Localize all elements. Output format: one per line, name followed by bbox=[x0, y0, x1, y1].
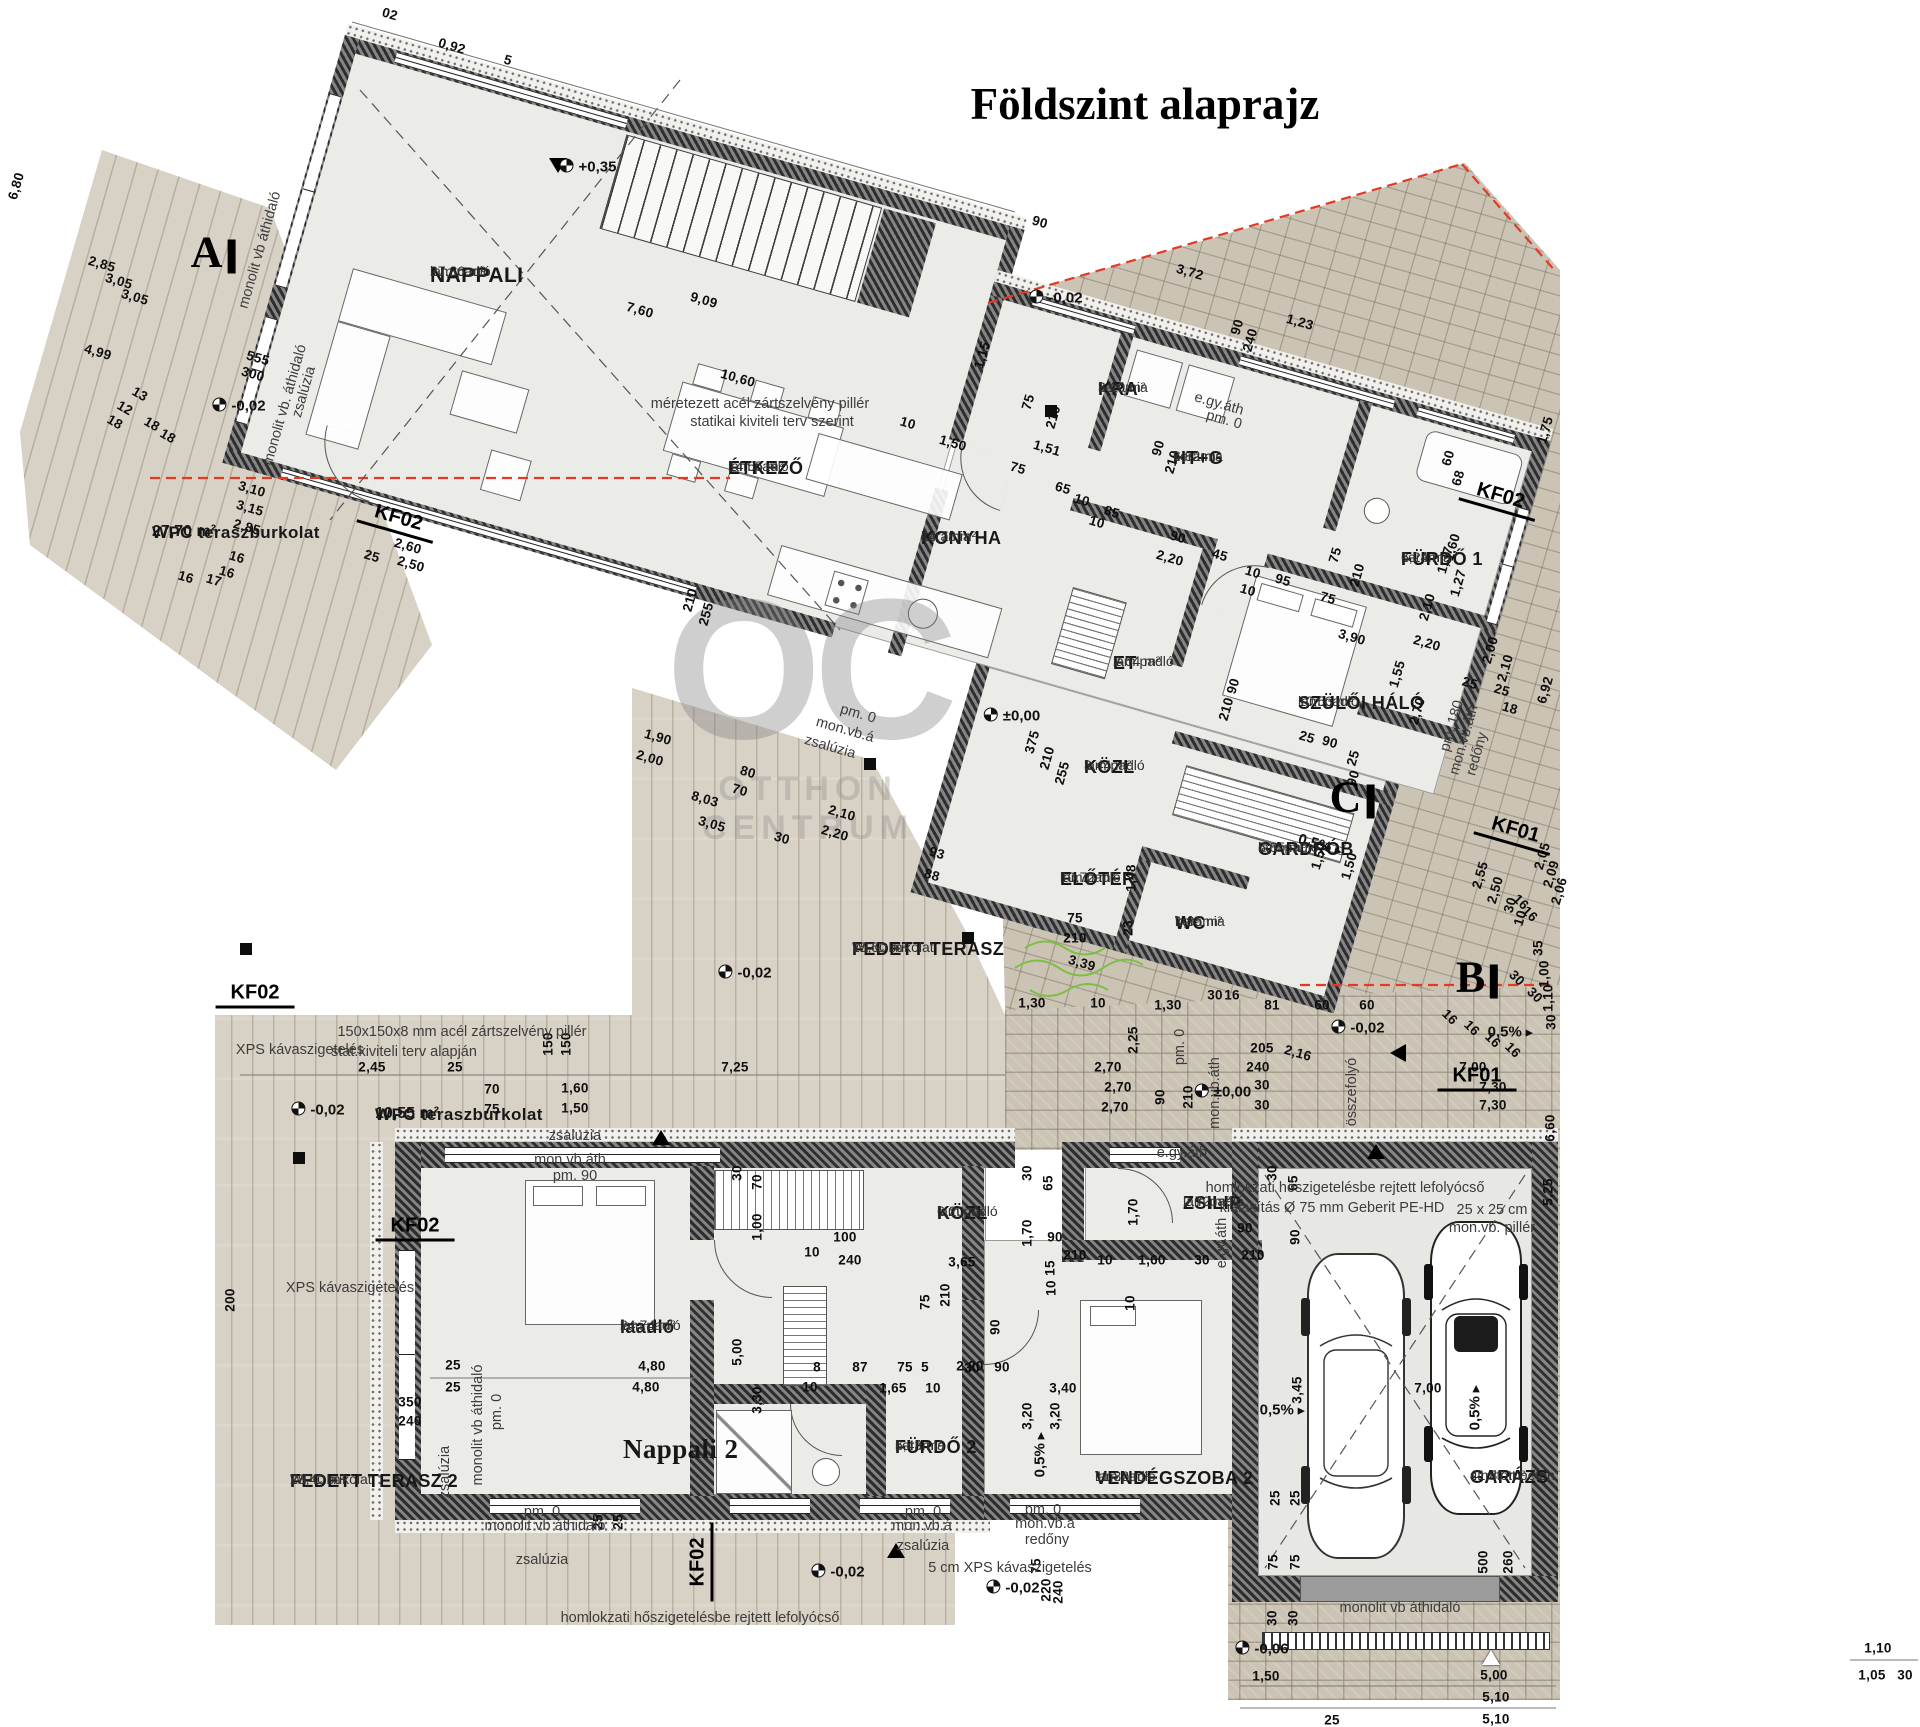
room-area: 1,85 m² bbox=[1175, 912, 1222, 930]
label-dim: 16 bbox=[1461, 1017, 1483, 1039]
label-dim: 205 bbox=[1250, 1041, 1273, 1056]
label-dim: 1,51 bbox=[1032, 437, 1063, 459]
label-dim: 4,99 bbox=[83, 341, 114, 363]
label-slope: 0,5% bbox=[1260, 1402, 1305, 1419]
label-dim: 75 bbox=[1019, 392, 1038, 411]
label-dim: 87 bbox=[852, 1360, 868, 1375]
label-sec: A bbox=[191, 227, 236, 278]
label-dim: 25 bbox=[1344, 748, 1363, 767]
label-dim: 2,20 bbox=[820, 822, 851, 844]
label-dim: 10 bbox=[1072, 491, 1091, 510]
label-dim: 2,10 bbox=[1494, 653, 1516, 684]
label-ann: mon.vb. pillér bbox=[1449, 1220, 1535, 1236]
label-dim: 1,30 bbox=[1018, 996, 1045, 1011]
label-kf: KF02 bbox=[1458, 474, 1541, 522]
label-dim: 3,20 bbox=[1048, 1402, 1063, 1429]
label-dim: 3,39 bbox=[1067, 952, 1098, 974]
label-dim: 1,10 bbox=[1864, 1641, 1891, 1656]
label-dim: 1,50 bbox=[1252, 1669, 1279, 1684]
label-dim: 2,70 bbox=[1101, 1100, 1128, 1115]
label-dim: 2,10 bbox=[1416, 592, 1438, 623]
label-dim: 30 bbox=[1286, 1610, 1301, 1626]
label-dim: 30 bbox=[1194, 1253, 1210, 1268]
label-dim: 75 bbox=[1288, 1554, 1303, 1570]
label-dim: 6,92 bbox=[1534, 675, 1556, 706]
label-ann: mon.vb.á bbox=[1015, 1516, 1075, 1532]
label-dim: 3,05 bbox=[120, 286, 151, 308]
room-area: 14,55 m² bbox=[728, 457, 783, 475]
label-dim: 1,10 bbox=[1541, 984, 1556, 1011]
label-ann: e.gy.áth bbox=[1157, 1145, 1208, 1161]
label-level: -0,02 bbox=[986, 1580, 1039, 1597]
label-dim: 5,00 bbox=[1480, 1668, 1507, 1683]
label-dim: 375 bbox=[1022, 729, 1043, 756]
label-ann: zsalúzia bbox=[897, 1538, 949, 1554]
label-level: -0,02 bbox=[718, 965, 771, 982]
label-dim: 210 bbox=[1043, 404, 1064, 431]
label-dim: 16 bbox=[227, 548, 246, 567]
label-dim: 3,20 bbox=[1020, 1402, 1035, 1429]
label-dim: 75 bbox=[1266, 1554, 1281, 1570]
label-slope: 0,5% bbox=[1488, 1024, 1533, 1041]
label-dim: 25 bbox=[1288, 1490, 1303, 1506]
room-area: 6,24 m² bbox=[1401, 548, 1448, 566]
label-ann: redőny bbox=[1025, 1532, 1069, 1548]
label-dim: 02 bbox=[380, 5, 399, 24]
label-dim: 210 bbox=[1347, 562, 1368, 589]
label-dim: 25 bbox=[1297, 728, 1316, 747]
label-dim: 10 bbox=[802, 1380, 818, 1395]
label-level: -0,02 bbox=[1331, 1020, 1384, 1037]
label-dim: 210 bbox=[938, 1283, 953, 1306]
label-ann: kialakítás Ø 75 mm Geberit PE-HD bbox=[1220, 1200, 1445, 1216]
label-dim: 7,30 bbox=[1479, 1098, 1506, 1113]
label-dim: 16 bbox=[176, 568, 195, 587]
room-area: 10,72 m² bbox=[1060, 868, 1115, 886]
label-dim: 25 bbox=[1268, 1490, 1283, 1506]
label-slope: 0,5% bbox=[1032, 1433, 1049, 1478]
label-dim: 1,65 bbox=[879, 1381, 906, 1396]
label-dim: 3,05 bbox=[697, 813, 728, 835]
room-area: 6,82 m² bbox=[1173, 447, 1220, 465]
label-dim: 25 bbox=[445, 1380, 461, 1395]
label-dim: 30 bbox=[730, 1165, 745, 1181]
label-dim: 210 bbox=[1063, 1248, 1086, 1263]
label-dim: 2,00 bbox=[1479, 635, 1501, 666]
room-area: 27,70 m² bbox=[152, 522, 216, 543]
label-dim: 10 bbox=[804, 1245, 820, 1260]
room-area: 14,78 m² bbox=[921, 527, 976, 545]
label-dim: 210 bbox=[1181, 1085, 1196, 1108]
room-area: 28,40 m² bbox=[290, 1470, 345, 1488]
label-layer: 020,9256,802,853,053,054,995553001312181… bbox=[0, 0, 1920, 1727]
label-dim: 18 bbox=[1500, 699, 1519, 718]
label-dim: 3,10 bbox=[237, 478, 268, 500]
label-ann: homlokzati hőszigetelésbe rejtett lefoly… bbox=[1206, 1180, 1485, 1196]
label-dim: 1,60 bbox=[1138, 1253, 1165, 1268]
label-dim: 2,20 bbox=[1412, 632, 1443, 654]
room-area: 11,32 m² bbox=[1095, 1467, 1149, 1485]
label-dim: 60 bbox=[1314, 998, 1330, 1013]
label-level: -0,02 bbox=[811, 1564, 864, 1581]
label-ann: homlokzati hőszigetelésbe rejtett lefoly… bbox=[561, 1610, 840, 1626]
label-dim: 90 bbox=[994, 1360, 1010, 1375]
label-kf: KF02 bbox=[216, 982, 295, 1009]
label-dim: 10 bbox=[898, 414, 917, 433]
label-dim: 30 bbox=[1254, 1078, 1270, 1093]
label-kf: KF01 bbox=[1473, 808, 1556, 856]
floor-plan-page: OC OTTHON CENTRUM Földszint alaprajz 020… bbox=[0, 0, 1920, 1727]
label-dim: 1,05 bbox=[1858, 1668, 1885, 1683]
label-kf: KF01 bbox=[1438, 1065, 1517, 1092]
label-dim: 4,80 bbox=[638, 1359, 665, 1374]
label-sec: B bbox=[1456, 952, 1498, 1003]
label-dim: 100 bbox=[833, 1230, 856, 1245]
room-name: Nappali 2 bbox=[623, 1432, 738, 1467]
label-dim: 10 bbox=[1243, 563, 1262, 582]
label-dim: 5,00 bbox=[730, 1338, 745, 1365]
label-dim: 10 bbox=[1087, 513, 1106, 532]
label-ann: méretezett acél zártszelvény pillér bbox=[651, 396, 869, 412]
label-ann: összefolyó bbox=[1344, 1058, 1360, 1127]
label-dim: 10,60 bbox=[719, 366, 757, 390]
label-dim: 1,55 bbox=[1386, 659, 1408, 690]
label-dim: 65 bbox=[1053, 479, 1072, 498]
label-level: ±0,00 bbox=[984, 708, 1040, 725]
label-dim: 2,45 bbox=[358, 1060, 385, 1075]
label-dim: 9,09 bbox=[689, 289, 720, 311]
label-dim: 10 bbox=[1090, 996, 1106, 1011]
label-dim: 1,30 bbox=[1154, 998, 1181, 1013]
label-dim: 65 bbox=[1041, 1175, 1056, 1191]
label-dim: 2,50 bbox=[396, 553, 427, 575]
label-dim: 25 bbox=[445, 1358, 461, 1373]
label-dim: 75 bbox=[1008, 459, 1027, 478]
label-dim: 10 bbox=[925, 1381, 941, 1396]
label-dim: 210 bbox=[1241, 1248, 1264, 1263]
label-dim: 30 bbox=[1254, 1098, 1270, 1113]
label-dim: 3,45 bbox=[1290, 1376, 1305, 1403]
label-dim: 2,25 bbox=[1126, 1026, 1141, 1053]
label-dim: 1,00 bbox=[750, 1213, 765, 1240]
label-level: -0,02 bbox=[291, 1102, 344, 1119]
label-dim: 240 bbox=[838, 1253, 861, 1268]
label-dim: 10 bbox=[1123, 1295, 1138, 1311]
label-dim: 3,72 bbox=[1175, 261, 1206, 283]
label-level: -0,06 bbox=[1235, 1641, 1288, 1658]
label-dim: 10 bbox=[1238, 581, 1257, 600]
label-dim: 6,80 bbox=[5, 171, 27, 202]
room-area: 41,87 m² bbox=[1470, 1466, 1525, 1484]
label-ann: mon.vb.áth bbox=[534, 1152, 606, 1168]
label-dim: 75 bbox=[1318, 589, 1337, 608]
label-dim: 30 bbox=[772, 829, 791, 848]
label-ann: statikai kiviteli terv szerint bbox=[690, 414, 854, 430]
label-dim: 3,30 bbox=[750, 1386, 765, 1413]
label-dim: 90 bbox=[1153, 1089, 1168, 1105]
label-dim: 60 bbox=[1359, 998, 1375, 1013]
label-dim: 70 bbox=[730, 781, 749, 800]
label-level: -0,02 bbox=[212, 398, 265, 415]
label-dim: 1,70 bbox=[1126, 1198, 1141, 1225]
label-dim: 70 bbox=[750, 1174, 765, 1190]
label-dim: 93 bbox=[927, 844, 946, 863]
label-dim: 16 bbox=[1439, 1006, 1461, 1028]
label-ann: pm. 90 bbox=[553, 1168, 597, 1184]
label-dim: 1,50 bbox=[938, 432, 969, 454]
label-dim: 16 bbox=[1502, 1039, 1524, 1061]
label-dim: 2,00 bbox=[635, 747, 666, 769]
label-dim: 75 bbox=[918, 1294, 933, 1310]
label-ann: monolit vb áthidaló bbox=[485, 1518, 606, 1534]
label-dim: 90 bbox=[1237, 1221, 1253, 1236]
label-dim: 5,10 bbox=[1482, 1690, 1509, 1705]
label-dim: 90 bbox=[1224, 676, 1243, 695]
room-area: 10,55 m² bbox=[375, 1104, 439, 1125]
room-area: 24,74 m² bbox=[620, 1316, 675, 1334]
label-slope: 0,5% bbox=[1467, 1386, 1484, 1431]
room-area: 2,72 m² bbox=[1183, 1192, 1230, 1210]
label-dim: 30 bbox=[1544, 1014, 1559, 1030]
room-area: 3,19 m² bbox=[1098, 378, 1145, 396]
label-dim: 1,50 bbox=[561, 1101, 588, 1116]
label-ann: pm. 0 bbox=[1172, 1029, 1188, 1065]
label-dim: 25 bbox=[1324, 1713, 1340, 1727]
label-dim: 10 bbox=[1097, 1253, 1113, 1268]
label-dim: 90 bbox=[1030, 213, 1049, 232]
room-area: 27,36 m² bbox=[430, 262, 485, 280]
label-level: +0,35 bbox=[560, 159, 617, 176]
label-dim: 1,60 bbox=[561, 1081, 588, 1096]
room-area: 15,50 m² bbox=[852, 938, 907, 956]
label-sec: C bbox=[1330, 772, 1375, 823]
label-dim: 7,25 bbox=[721, 1060, 748, 1075]
label-dim: 23 bbox=[1121, 920, 1136, 936]
label-dim: 5,25 bbox=[1541, 1178, 1556, 1205]
label-ann: e.gy.áth bbox=[1214, 1218, 1230, 1269]
label-dim: 200 bbox=[223, 1288, 238, 1311]
label-dim: 7,00 bbox=[1414, 1381, 1441, 1396]
room-area: 5,43 m² bbox=[895, 1436, 942, 1454]
label-ann: zsaluzia bbox=[549, 1128, 601, 1144]
label-dim: 35 bbox=[1531, 940, 1546, 956]
label-dim: 30 bbox=[1506, 967, 1528, 989]
label-dim: 260 bbox=[1501, 1550, 1516, 1573]
label-dim: 30 bbox=[1265, 1610, 1280, 1626]
label-dim: 3,15 bbox=[235, 497, 266, 519]
label-dim: 210 bbox=[1037, 745, 1058, 772]
label-dim: 15 bbox=[1043, 1260, 1058, 1276]
label-ann: XPS kávaszigetelés bbox=[286, 1280, 414, 1296]
label-dim: 240 bbox=[398, 1414, 421, 1429]
label-dim: 95 bbox=[1273, 571, 1292, 590]
label-dim: 2,70 bbox=[1094, 1060, 1121, 1075]
label-dim: 18 bbox=[141, 414, 162, 435]
label-dim: 90 bbox=[1320, 733, 1339, 752]
label-kf: KF02 bbox=[687, 1523, 714, 1602]
label-dim: 60 bbox=[1439, 448, 1458, 467]
label-level: -0,02 bbox=[1029, 290, 1082, 307]
label-dim: 4,80 bbox=[632, 1380, 659, 1395]
label-dim: 90 bbox=[1168, 528, 1187, 547]
label-dim: 3,65 bbox=[948, 1255, 975, 1270]
label-dim: 1,27 bbox=[1447, 568, 1469, 599]
label-dim: 350 bbox=[398, 1395, 421, 1410]
label-dim: 240 bbox=[1051, 1580, 1066, 1603]
label-dim: 1,15 bbox=[971, 340, 993, 371]
label-dim: 16 bbox=[1224, 988, 1240, 1003]
label-dim: 210 bbox=[1063, 931, 1086, 946]
label-dim: 81 bbox=[1264, 998, 1280, 1013]
label-dim: 3,40 bbox=[1049, 1381, 1076, 1396]
label-dim: 17 bbox=[204, 571, 223, 590]
label-level: ±0,00 bbox=[1195, 1084, 1251, 1101]
label-ann: monolit vb áthidaló bbox=[1340, 1600, 1461, 1616]
label-dim: 30 bbox=[1020, 1165, 1035, 1181]
label-dim: 80 bbox=[738, 763, 757, 782]
label-dim: 3,90 bbox=[1337, 626, 1368, 648]
label-dim: 255 bbox=[1052, 760, 1073, 787]
room-area: 3,44 m² bbox=[1084, 756, 1131, 774]
label-ann: 25 x 25 cm bbox=[1457, 1202, 1528, 1218]
label-dim: 30 bbox=[1207, 988, 1223, 1003]
label-dim: 70 bbox=[484, 1082, 500, 1097]
label-dim: 2,20 bbox=[956, 1359, 983, 1374]
label-dim: 1,23 bbox=[1285, 311, 1316, 333]
label-dim: 1,70 bbox=[1020, 1219, 1035, 1246]
label-dim: 2,10 bbox=[827, 802, 858, 824]
label-dim: 255 bbox=[696, 601, 717, 628]
label-dim: 10 bbox=[1044, 1280, 1059, 1296]
room-area: 2,64 m² bbox=[1113, 652, 1160, 670]
label-dim: 210 bbox=[1216, 696, 1237, 723]
label-dim: 240 bbox=[1246, 1060, 1269, 1075]
label-dim: 210 bbox=[680, 587, 701, 614]
label-dim: 6,60 bbox=[1543, 1114, 1558, 1141]
label-dim: 2,20 bbox=[1155, 547, 1186, 569]
label-dim: 500 bbox=[1476, 1550, 1491, 1573]
label-dim: 1,75 bbox=[1534, 415, 1556, 446]
label-dim: 2,16 bbox=[1283, 1042, 1314, 1064]
room-area: 5,85 m² bbox=[1258, 838, 1305, 856]
label-dim: 30 bbox=[1265, 1165, 1280, 1181]
label-dim: 90 bbox=[988, 1319, 1003, 1335]
label-dim: 8,03 bbox=[690, 788, 721, 810]
label-dim: 2,70 bbox=[1104, 1080, 1131, 1095]
label-ann: monolit vb áthidaló bbox=[470, 1365, 486, 1486]
label-ann: pm. 0 bbox=[489, 1394, 505, 1430]
label-dim: 30 bbox=[1897, 1668, 1913, 1683]
label-ann: mon.vb.á bbox=[892, 1518, 952, 1534]
label-dim: 90 bbox=[1149, 438, 1168, 457]
label-dim: 8 bbox=[813, 1360, 821, 1375]
label-dim: 7,60 bbox=[625, 299, 656, 321]
label-dim: 75 bbox=[1067, 911, 1083, 926]
label-dim: 13 bbox=[129, 384, 150, 405]
label-dim: 45 bbox=[1210, 546, 1229, 565]
label-dim: 25 bbox=[1460, 674, 1479, 693]
label-dim: 5,10 bbox=[1482, 1712, 1509, 1727]
label-dim: 75 bbox=[897, 1360, 913, 1375]
label-dim: 18 bbox=[157, 426, 178, 447]
label-kf: KF02 bbox=[376, 1215, 455, 1242]
label-dim: 88 bbox=[922, 866, 941, 885]
room-area: 10,53 m² bbox=[1298, 692, 1353, 710]
label-dim: 25 bbox=[1492, 681, 1511, 700]
label-dim: 90 bbox=[1047, 1230, 1063, 1245]
label-ann: 150x150x8 mm acél zártszelvény pillér bbox=[337, 1024, 586, 1040]
label-dim: 5 bbox=[921, 1360, 929, 1375]
label-ann: monolit vb áthidaló bbox=[236, 190, 285, 311]
label-ann: 5 cm XPS kávaszigetelés bbox=[928, 1560, 1092, 1576]
label-dim: 0,92 bbox=[437, 35, 468, 57]
label-dim: 5 bbox=[502, 52, 514, 69]
room-area: 6,20 m² bbox=[937, 1202, 984, 1220]
label-dim: 75 bbox=[1326, 545, 1345, 564]
label-dim: 25 bbox=[362, 547, 381, 566]
label-dim: 25 bbox=[611, 1514, 626, 1530]
label-dim: 25 bbox=[447, 1060, 463, 1075]
label-dim: 90 bbox=[1288, 1229, 1303, 1245]
label-ann: XPS kávaszigetelés bbox=[236, 1042, 364, 1058]
label-ann: zsalúzia bbox=[516, 1552, 568, 1568]
label-dim: 1,90 bbox=[643, 726, 674, 748]
